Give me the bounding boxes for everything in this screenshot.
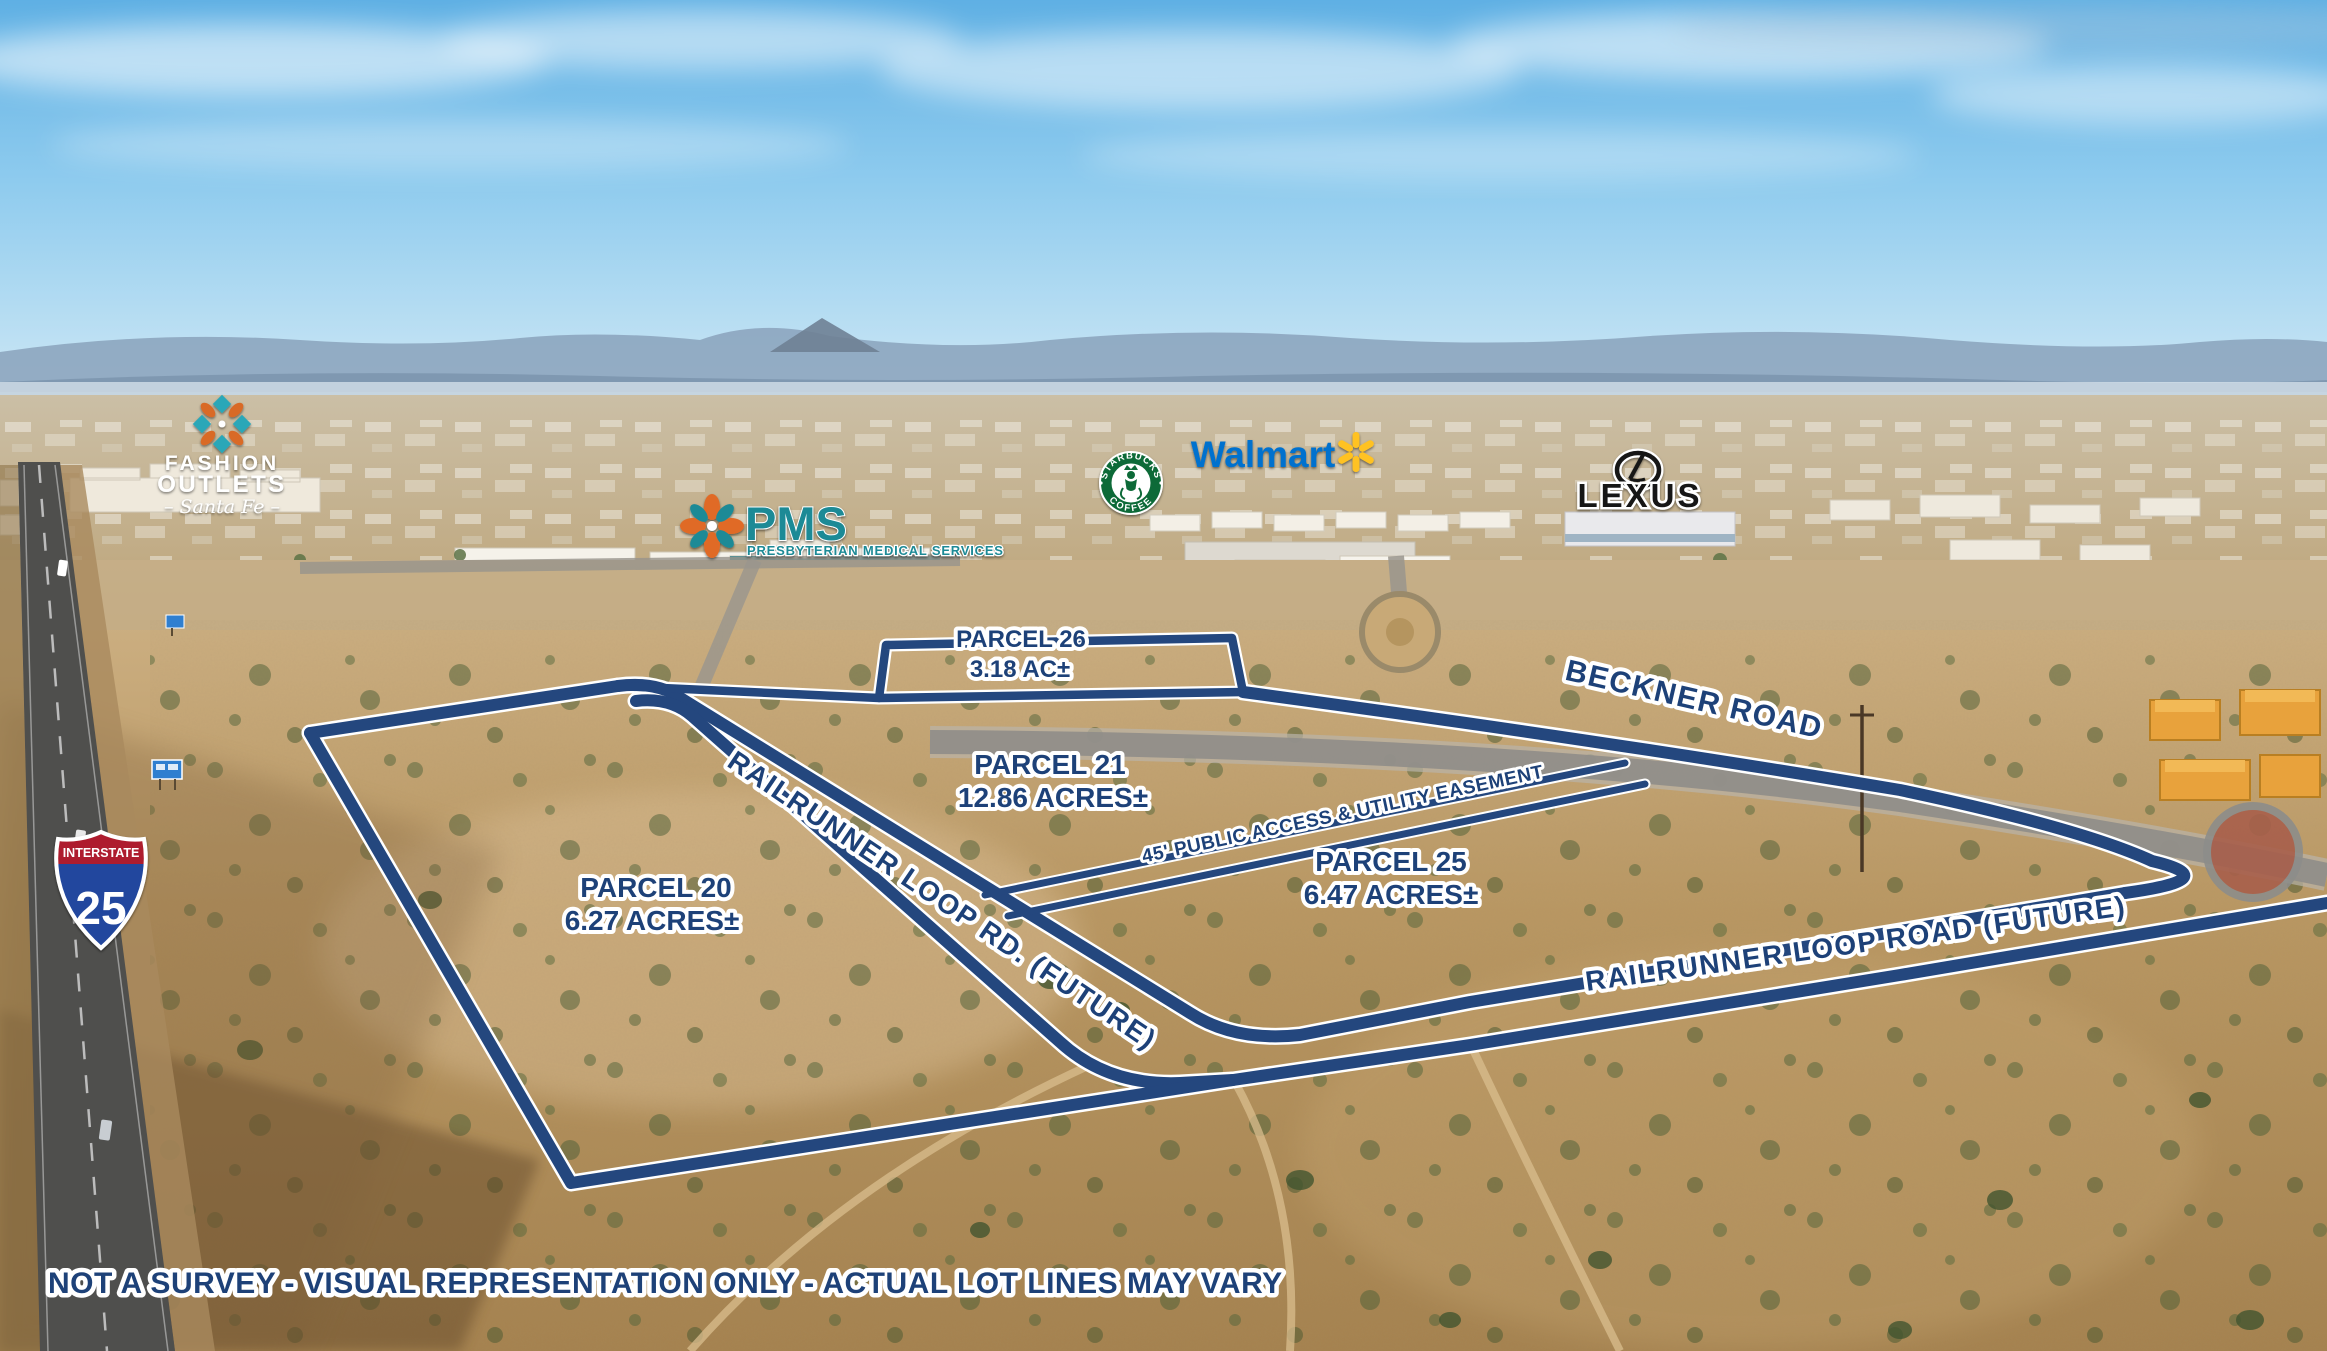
roundabout-east	[2207, 806, 2299, 898]
disclaimer-text: NOT A SURVEY - VISUAL REPRESENTATION ONL…	[48, 1267, 1283, 1300]
building-lexus-dealership	[1565, 512, 1735, 546]
parcel-26-name: PARCEL 26	[956, 626, 1086, 653]
parcel-25-name: PARCEL 25	[1315, 846, 1466, 877]
parcel-20-name: PARCEL 20	[580, 872, 731, 903]
lexus-wordmark: LEXUS	[1577, 477, 1702, 514]
scene-svg: PARCEL 26 3.18 AC± PARCEL 21 12.86 ACRES…	[0, 0, 2327, 1351]
aerial-parcel-map: PARCEL 26 3.18 AC± PARCEL 21 12.86 ACRES…	[0, 0, 2327, 1351]
parcel-21-name: PARCEL 21	[974, 749, 1125, 780]
walmart-wordmark: Walmart	[1191, 434, 1336, 475]
parcel-21-area: 12.86 ACRES±	[958, 782, 1148, 813]
parcel-25-area: 6.47 ACRES±	[1304, 879, 1479, 910]
city-street	[300, 560, 960, 568]
fashion-outlets-line3: – Santa Fe –	[164, 496, 280, 518]
interstate-label: INTERSTATE	[63, 846, 140, 860]
interstate-number: 25	[75, 882, 126, 934]
fashion-outlets-line2: OUTLETS	[157, 471, 287, 498]
parcel-20-area: 6.27 ACRES±	[565, 905, 740, 936]
pms-tagline: PRESBYTERIAN MEDICAL SERVICES	[747, 543, 1004, 558]
parcel-26-area: 3.18 AC±	[970, 656, 1070, 683]
